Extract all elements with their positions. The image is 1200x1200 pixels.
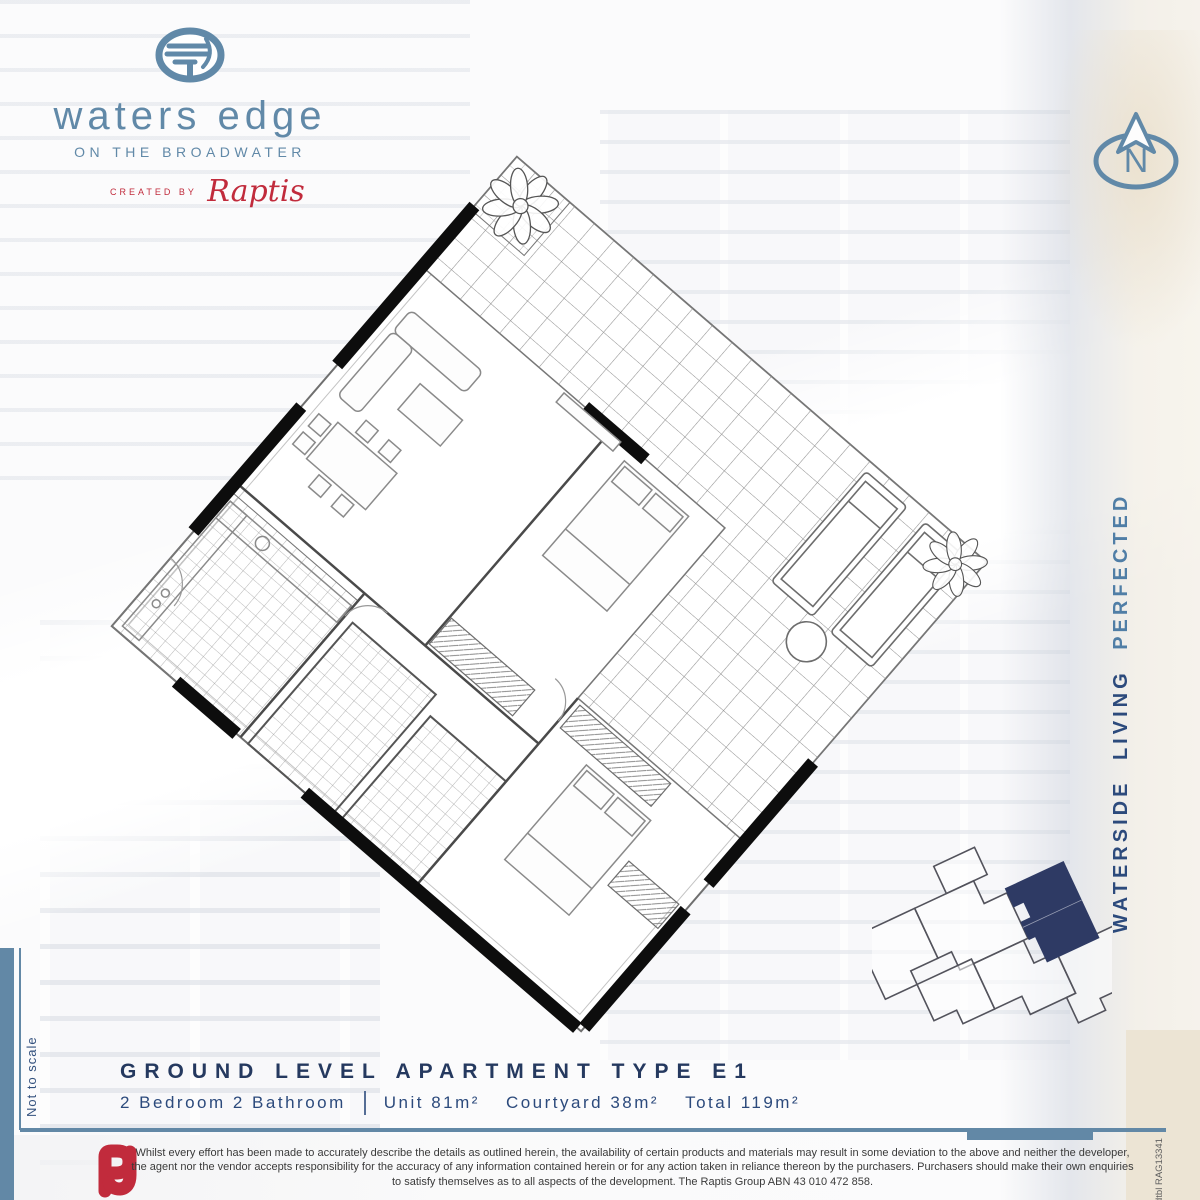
waters-edge-logo-icon <box>151 22 229 92</box>
page-subtitle: 2 Bedroom 2 Bathroom Unit 81m² Courtyard… <box>120 1091 826 1115</box>
waterside-tagline-main: WATERSIDE LIVING <box>1110 650 1132 933</box>
waterside-tagline-vertical: WATERSIDE LIVING PERFECTED <box>1110 278 1133 933</box>
floor-plan <box>100 110 1000 1060</box>
brochure-page: waters edge ON THE BROADWATER CREATED BY… <box>0 0 1200 1200</box>
not-to-scale-label: Not to scale <box>24 1012 39 1117</box>
waterside-tagline-accent: PERFECTED <box>1110 493 1132 650</box>
divider-rule-tab <box>967 1128 1093 1140</box>
print-code: dtbl RAG13341 <box>1154 1128 1165 1200</box>
spec-total: Total 119m² <box>685 1093 800 1113</box>
left-corner-line <box>19 948 21 1130</box>
subtitle-divider <box>364 1091 366 1115</box>
page-title: GROUND LEVEL APARTMENT TYPE E1 <box>120 1060 754 1084</box>
north-compass-icon: N <box>1088 106 1184 200</box>
building-keyplan <box>872 818 1112 1068</box>
spec-courtyard: Courtyard 38m² <box>506 1093 659 1113</box>
rooms-label: 2 Bedroom 2 Bathroom <box>120 1093 346 1113</box>
left-corner-bar <box>0 948 14 1200</box>
disclaimer-text: Whilst every effort has been made to acc… <box>130 1146 1135 1189</box>
spec-unit: Unit 81m² <box>384 1093 480 1113</box>
compass-letter: N <box>1124 142 1149 180</box>
